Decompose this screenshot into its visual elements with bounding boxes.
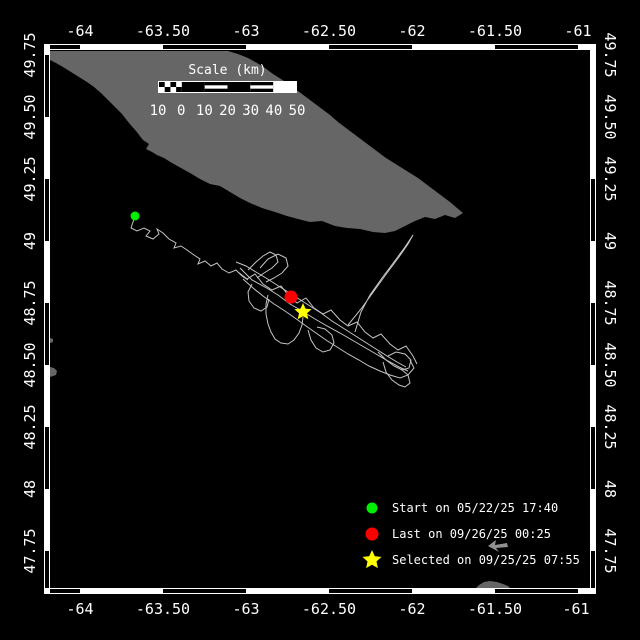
- frame-black-segment: [48, 589, 80, 593]
- axis-tick-label: 48.50: [21, 342, 39, 387]
- axis-tick-label: 47.75: [21, 528, 39, 573]
- scalebar-segment: [165, 87, 171, 92]
- scalebar-segment: [205, 85, 228, 88]
- axis-tick-label: -64: [66, 600, 93, 618]
- map-frame-right: [590, 44, 596, 594]
- map-frame-left: [44, 44, 50, 594]
- legend-label-selected: Selected on 09/25/25 07:55: [392, 553, 580, 567]
- coastline-fragment: [50, 367, 57, 377]
- track-path[interactable]: [348, 235, 413, 332]
- axis-tick-label: -61.50: [468, 600, 522, 618]
- frame-black-segment: [45, 427, 49, 489]
- legend-item-start: Start on 05/22/25 17:40: [358, 496, 558, 520]
- frame-black-segment: [495, 589, 578, 593]
- island-landmass: [50, 51, 463, 233]
- axis-tick-label: 49: [601, 232, 619, 250]
- scalebar-label: 20: [219, 103, 236, 119]
- axis-tick-label: -62: [398, 600, 425, 618]
- axis-tick-label: -64: [66, 22, 93, 40]
- scalebar-segment: [159, 82, 165, 87]
- axis-tick-label: -61.50: [468, 22, 522, 40]
- axis-tick-label: 48.50: [601, 342, 619, 387]
- scalebar-label: 40: [265, 103, 282, 119]
- frame-black-segment: [495, 45, 578, 49]
- frame-black-segment: [329, 589, 412, 593]
- track-path[interactable]: [260, 254, 288, 282]
- frame-black-segment: [45, 55, 49, 117]
- axis-tick-label: -61: [564, 22, 591, 40]
- scalebar-segment: [228, 82, 251, 92]
- axis-tick-label: -61: [562, 600, 589, 618]
- axis-tick-label: 49.75: [21, 32, 39, 77]
- axis-tick-label: -62.50: [302, 22, 356, 40]
- frame-black-segment: [45, 551, 49, 588]
- legend-item-selected: Selected on 09/25/25 07:55: [358, 548, 580, 572]
- scalebar-segment: [182, 82, 205, 92]
- last-marker[interactable]: [285, 291, 298, 304]
- axis-tick-label: 47.75: [601, 528, 619, 573]
- axis-tick-label: 49.25: [601, 156, 619, 201]
- axis-tick-label: -62: [398, 22, 425, 40]
- frame-black-segment: [45, 303, 49, 365]
- frame-black-segment: [45, 179, 49, 241]
- legend-label-last: Last on 09/26/25 00:25: [392, 527, 551, 541]
- scalebar-label: 10: [150, 103, 167, 119]
- frame-black-segment: [163, 45, 246, 49]
- axis-tick-label: -63: [232, 600, 259, 618]
- frame-black-segment: [591, 179, 595, 241]
- coastline-fragment: [50, 338, 53, 343]
- track-path[interactable]: [243, 279, 414, 378]
- scalebar-segment: [170, 82, 176, 87]
- map-frame-top: [44, 44, 596, 50]
- start-marker[interactable]: [131, 212, 140, 221]
- frame-black-segment: [591, 551, 595, 588]
- axis-tick-label: 48.75: [21, 280, 39, 325]
- axis-tick-label: 48: [21, 480, 39, 498]
- axis-tick-label: 49.50: [21, 94, 39, 139]
- axis-tick-label: 49.50: [601, 94, 619, 139]
- map-frame-bottom: [44, 588, 596, 594]
- axis-tick-label: -63.50: [136, 22, 190, 40]
- frame-black-segment: [329, 45, 412, 49]
- axis-tick-label: 48.75: [601, 280, 619, 325]
- frame-black-segment: [48, 45, 80, 49]
- scalebar-label: 50: [289, 103, 306, 119]
- map-window: -64-63.50-63-62.50-62-61.50-61-64-63.50-…: [0, 0, 640, 640]
- selected-legend-icon: [358, 548, 382, 572]
- scalebar-label: 0: [177, 103, 185, 119]
- axis-tick-label: 49: [21, 232, 39, 250]
- frame-black-segment: [591, 427, 595, 489]
- legend-item-last: Last on 09/26/25 00:25: [358, 522, 551, 546]
- scalebar-title: Scale (km): [158, 63, 297, 78]
- axis-tick-label: 49.25: [21, 156, 39, 201]
- axis-tick-label: -63.50: [136, 600, 190, 618]
- axis-tick-label: 48.25: [21, 404, 39, 449]
- track-path[interactable]: [131, 216, 248, 280]
- scalebar-segment: [176, 87, 182, 92]
- axis-tick-label: 48: [601, 480, 619, 498]
- axis-tick-label: 48.25: [601, 404, 619, 449]
- scalebar-label: 10: [196, 103, 213, 119]
- axis-tick-label: 49.75: [601, 32, 619, 77]
- track-path[interactable]: [308, 327, 334, 352]
- coastline-fragment: [476, 581, 510, 588]
- track-path[interactable]: [240, 268, 408, 371]
- last-legend-icon: [358, 522, 382, 546]
- axis-tick-label: -62.50: [302, 600, 356, 618]
- frame-black-segment: [591, 303, 595, 365]
- legend-label-start: Start on 05/22/25 17:40: [392, 501, 558, 515]
- start-legend-icon: [358, 496, 382, 520]
- frame-black-segment: [163, 589, 246, 593]
- scalebar-label: 30: [242, 103, 259, 119]
- scalebar-segment: [250, 85, 273, 88]
- axis-tick-label: -63: [232, 22, 259, 40]
